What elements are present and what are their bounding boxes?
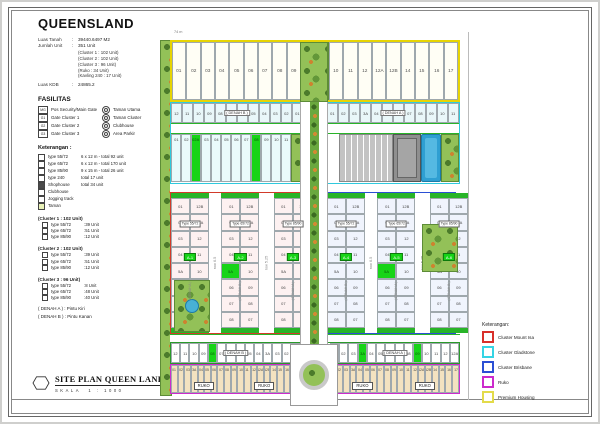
legend-type-row: Taman [38,203,156,210]
lot-cell: 07 [240,312,259,328]
denah-vertical-label: ( DENAH B ) [447,281,451,300]
lot-cell: 01 [430,198,449,214]
lot-cell: 5A [377,263,396,279]
lot-cell: 3A [358,343,367,363]
unit-breakdown-line: (Kavling 240 : 17 Unit) [38,73,156,79]
info-value: 24865.2 [78,82,95,88]
legend-row: Cluster Brisbane [482,361,578,373]
type-count: 40 Unit [85,295,99,301]
lot-cell: 10 [346,263,365,279]
legend-label: Premium Housing [498,395,535,400]
legend-label: Cluster Brisbane [498,365,532,370]
lot-cell: 08 [240,296,259,312]
fasilitas-label: Pos Security/Main Gate [51,106,97,114]
legend-row: Cluster Gladstone [482,346,578,358]
denah-a-chip: ( DENAH A ) [380,110,405,116]
lot-cell: 10 [271,134,281,182]
type-label: Taman [48,203,81,210]
lot-cell: 12 [190,231,209,247]
main-gate-roundabout [290,344,338,406]
lot-cell: 15 [439,365,446,393]
type-label: type 85/90 [51,295,84,301]
cluster-title: (Cluster 2 : 102 Unit) [38,245,156,252]
denah-vertical-label: ( DENAH B ) [344,281,348,300]
lot-cell: 08 [396,296,415,312]
lot-cell: 09 [204,103,215,123]
housing-column-block: 010203045A06070812B12A121110090807A-5Typ… [377,193,415,333]
lot-cell: 10 [397,365,404,393]
legend-type-row: type 65/726 x 12 m - total 170 unit [38,161,156,168]
lot-cell: 02 [338,103,349,123]
ruko-strip-left: RUKO RUKO 0102033A04050607080910111212A1… [170,364,298,394]
lot-cell: 03 [221,231,240,247]
legend-row: Ruko [482,376,578,388]
cluster-title: (Cluster 1 : 102 Unit) [38,215,156,222]
type-count: 12 Unit [85,265,99,271]
legend-label: Ruko [498,380,509,385]
lot-cell: 01 [171,134,181,182]
block-gate-label: A-1 [184,253,196,261]
info-sidebar: QUEENSLAND Luas Tanah: 39440.6497 M2 Jum… [38,16,156,320]
type-swatch [38,161,45,168]
lot-cell: 02 [181,134,191,182]
lot-cell: 07 [217,365,224,393]
lot-cell: 12B [240,198,259,214]
lot-cell: 03 [274,231,293,247]
lot-cell: 11 [431,343,440,363]
sheet-title: SITE PLAN QUEEN LAND [55,374,164,386]
lot-cell: 03 [327,231,346,247]
title-block: SITE PLAN QUEEN LAND SKALA 1 : 1000 [32,374,172,393]
lot-cell: 04 [254,343,263,363]
lot-cell: 02 [186,42,200,100]
lot-cell: 07 [404,103,415,123]
house-type-chip: Type 55/72 [336,220,357,227]
cluster1-breakdown: (Cluster 1 : 102 Unit) type 55/72: 39 Un… [38,215,156,241]
lot-cell: 08 [346,296,365,312]
taman-cluster-icon [102,114,110,122]
gate2-icon: G2 [38,122,48,130]
swimming-pool [421,134,441,182]
block-gate-label: A-4 [340,253,352,261]
lot-cell: 04 [259,103,270,123]
type-desc: 9 x 15 m - total 26 unit [81,168,124,175]
keterangan-heading: Keterangan : [38,145,156,151]
housing-column-block: 010203045A06070812B12A121110090807A-4Typ… [327,193,365,333]
denah-a-note: ( DENAH A ) : Pintu Kiri [38,305,156,312]
lot-cell: 12 [171,103,182,123]
lot-cell: 08 [415,103,426,123]
lot-cell: 11 [404,365,411,393]
road-vertical: row 6.5 [209,193,221,333]
legend-type-row: type 240total 17 unit [38,175,156,182]
lot-cell: 10 [422,343,431,363]
main-gate-icon: MG [38,106,48,114]
fasilitas-label: Gate Cluster 3 [51,130,79,138]
denah-vertical-label: ( DENAH B ) [238,281,242,300]
cluster-title: (Cluster 3 : 96 Unit) [38,276,156,283]
cluster3-breakdown: (Cluster 3 : 96 Unit) type 55/72: 8 Unit… [38,276,156,302]
premium-lots-left: 010203040506070809 [172,42,301,100]
fasilitas-label: Clubhouse [113,122,134,130]
lot-cell: 03 [171,231,190,247]
denah-b-note: ( DENAH B ) : Pintu Kanan [38,313,156,320]
lot-cell: 04 [367,343,376,363]
type-label: Clubhouse [48,189,81,196]
mount-isa-swatch [482,331,494,343]
lot-cell: 09 [391,365,398,393]
lot-cell: 06 [231,134,241,182]
fasilitas-label: Taman Utama [113,106,140,114]
ruko-label: RUKO [254,382,274,390]
legend-type-row: type 85/909 x 15 m - total 26 unit [38,168,156,175]
type-label: type 55/72 [48,154,81,161]
fasilitas-row: G2Gate Cluster 2 Clubhouse [38,122,156,130]
denah-a-lots: ( DENAH A )0102033A0405060708091011 [327,103,459,123]
lot-cell: 02 [339,343,348,363]
lot-cell: 03 [184,365,191,393]
lot-cell: 01 [221,198,240,214]
lot-cell: 07 [449,312,468,328]
type-swatch [38,154,45,161]
lot-cell: 08 [272,42,286,100]
type-label: Jogging track [48,196,81,203]
info-value: 351 Unit [78,43,95,49]
central-garden-top [300,42,328,102]
lot-cell: 10 [240,263,259,279]
ruko-label: RUKO [415,382,435,390]
cluster-legend: Keterangan: Cluster Mount Isa Cluster Gl… [482,322,578,406]
house-type-chip: Type 85/90 [283,220,304,227]
lot-cell: 03 [201,134,211,182]
scale-note: SKALA 1 : 1000 [55,388,164,393]
legend-heading: Keterangan: [482,322,578,328]
lot-cell: 01 [327,198,346,214]
lot-cell: 07 [396,312,415,328]
type-label: type 240 [48,175,81,182]
lot-cell: 08 [449,296,468,312]
lot-cell: 08 [224,365,231,393]
fasilitas-label: Area Parkir [113,130,135,138]
lot-cell: 09 [261,134,271,182]
lot-cell: 5A [221,263,240,279]
type-swatch [38,203,45,210]
lot-cell: 3A [263,343,272,363]
lot-cell: 05 [221,134,231,182]
denah-vertical-label: ( DENAH A ) [291,282,295,301]
denah-b-chip: ( DENAH B ) [223,350,249,356]
ruko-strip-right: RUKO RUKO 0102033A04050607080910111212A1… [328,364,460,394]
gladstone-lots: 010202A030405060708091011 [171,134,291,182]
lot-cell: 12 [396,231,415,247]
lot-cell: 12B [386,42,400,100]
cluster-park-pond [174,280,210,332]
lot-cell: 12B [346,198,365,214]
type-swatch [38,196,45,203]
fasilitas-label: Gate Cluster 2 [51,122,79,130]
ruko-label: RUKO [352,382,372,390]
lot-cell: 01 [327,103,338,123]
lot-cell: 5A [274,263,293,279]
site-plan-drawing: 74 m 010203040506070809 10111212A12B1415… [160,12,474,410]
house-type-chip: Type 65/72 [386,220,407,227]
lot-cell: 06 [244,42,258,100]
lot-cell: 17 [452,365,459,393]
brisbane-swatch [482,361,494,373]
lot-cell: 11 [244,365,251,393]
dimension-line [468,32,469,400]
type-swatch [38,168,45,175]
lot-cell: 01 [171,198,190,214]
project-title: QUEENSLAND [38,16,156,31]
road-vertical: row 5.25 [259,193,274,333]
fasilitas-row: G1Gate Cluster 1 Taman Cluster [38,114,156,122]
fasilitas-heading: FASILITAS [38,96,156,103]
gate1-icon: G1 [38,114,48,122]
lot-cell: 02 [281,103,292,123]
lot-cell: 10 [237,365,244,393]
gate3-icon: G3 [38,130,48,138]
lot-cell: 12A [450,343,459,363]
boulevard-median [310,102,319,346]
lot-cell: 14 [401,42,415,100]
denah-b-lots: ( DENAH B )121110090807060504030201 [171,103,303,123]
lot-cell: 11 [182,103,193,123]
type-desc: 6 x 12 m - total 92 unit [81,154,124,161]
lot-cell: 02 [178,365,185,393]
ruko-swatch [482,376,494,388]
lot-cell: 07 [258,42,272,100]
block-gate-label: A-5 [390,253,402,261]
legend-label: Cluster Mount Isa [498,335,534,340]
lot-cell: 09 [449,279,468,295]
legend-label: Cluster Gladstone [498,350,535,355]
type-desc: total 17 unit [81,175,103,182]
legend-type-row: type 55/726 x 12 m - total 92 unit [38,154,156,161]
bottom-lots-left: ( DENAH B )121110090807065A05043A030201 [171,343,300,363]
lot-cell: 10 [189,343,198,363]
lot-cell: 03 [272,343,281,363]
lot-cell: 5A [327,263,346,279]
cluster-park-east [422,224,458,272]
lot-cell: 11 [180,343,189,363]
lot-cell: 11 [281,134,291,182]
legend-type-row: Clubhouse [38,189,156,196]
paper-sheet: QUEENSLAND Luas Tanah: 39440.6497 M2 Jum… [2,2,598,422]
area-parkir-icon [102,130,110,138]
parking-area [339,134,393,182]
lot-cell: 10 [437,103,448,123]
lot-cell: 09 [199,343,208,363]
legend-row: Premium Housing [482,391,578,403]
block-gate-label: A-2 [234,253,246,261]
lot-cell: 01 [171,365,178,393]
lot-cell: 01 [377,198,396,214]
clubhouse-complex [339,134,459,182]
pond [185,299,199,313]
type-swatch [38,175,45,182]
housing-column-block: 010203045A06070812B12A121110090807A-2Typ… [221,193,259,333]
legend-type-row: Jogging track [38,196,156,203]
type-label: type 65/72 [48,161,81,168]
fasilitas-row: G3Gate Cluster 3 Area Parkir [38,130,156,138]
lot-cell: 09 [346,279,365,295]
legend-type-row: Shophousetotal 34 unit [38,182,156,189]
fasilitas-label: Taman Cluster [113,114,141,122]
type-label: type 85/90 [48,168,81,175]
house-type-chip: Type 55/72 [180,220,201,227]
type-label: type 85/90 [51,234,84,240]
lot-cell: 5A [171,263,190,279]
lot-cell: 09 [240,279,259,295]
type-label: type 85/90 [51,265,84,271]
lot-cell: 10 [193,103,204,123]
lot-cell: 16 [445,365,452,393]
lot-cell: 12B [190,198,209,214]
clubhouse-icon [102,122,110,130]
lot-cell: 05 [229,42,243,100]
lot-cell: 15 [277,365,284,393]
type-desc: total 34 unit [81,182,103,189]
lot-cell: 17 [444,42,458,100]
denah-b-chip: ( DENAH B ) [224,110,250,116]
lot-cell: 08 [430,312,449,328]
lot-cell: 09 [413,343,422,363]
lot-cell: 3A [360,103,371,123]
type-count: 12 Unit [85,234,99,240]
denah-vertical-label: ( DENAH A ) [394,282,398,301]
lot-cell: 03 [201,42,215,100]
lot-cell: 08 [251,134,261,182]
lot-cell: 03 [377,231,396,247]
lot-cell: 12B [396,198,415,214]
denah-a-chip: ( DENAH A ) [382,350,407,356]
block-gate-label: A-3 [287,253,299,261]
lot-cell: 07 [241,134,251,182]
fasilitas-label: Gate Cluster 1 [51,114,79,122]
house-type-chip: Type 85/90 [439,220,460,227]
info-label: Jumlah Unit [38,43,72,49]
lot-cell: 12 [346,231,365,247]
cluster2-breakdown: (Cluster 2 : 102 Unit) type 55/72: 39 Un… [38,245,156,271]
ruko-label: RUKO [194,382,214,390]
lot-cell: 07 [377,365,384,393]
lot-cell: 12 [171,343,180,363]
dimension-text: 74 m [174,30,182,34]
lot-cell: 01 [274,198,293,214]
lot-cell: 10 [329,42,343,100]
lot-cell: 04 [215,42,229,100]
lot-cell: 09 [231,365,238,393]
site-plan-sheet: { "sidebar": { "title": "QUEENSLAND", "i… [0,0,600,424]
info-row: Luas KDB: 24865.2 [38,82,156,88]
denah-vertical-label: ( DENAH A ) [188,282,192,301]
lot-cell: 12B [449,198,468,214]
lot-cell: 08 [208,343,217,363]
house-type-chip: Type 65/72 [230,220,251,227]
lot-cell: 08 [384,365,391,393]
lot-cell: 12 [441,343,450,363]
lot-cell: 09 [396,279,415,295]
lot-cell: 03 [348,343,357,363]
type-desc: 6 x 12 m - total 170 unit [81,161,126,168]
block-gate-label: A-6 [443,253,455,261]
lot-cell: 03 [270,103,281,123]
lot-cell: 12 [358,42,372,100]
type-swatch [38,189,45,196]
type-swatch [38,182,45,189]
lot-cell: 10 [396,263,415,279]
lot-cell: 08 [221,312,240,328]
premium-swatch [482,391,494,403]
clubhouse-building [393,134,421,182]
gladstone-swatch [482,346,494,358]
lot-cell: 03 [343,365,350,393]
lot-cell: 12 [240,231,259,247]
company-logo-icon [32,375,50,391]
lot-cell: 12A [372,42,386,100]
lot-cell: 11 [343,42,357,100]
info-label: Luas KDB [38,82,72,88]
lot-cell: 02A [191,134,201,182]
roundabout-island [299,360,329,390]
lot-cell: 03 [349,103,360,123]
lot-cell: 09 [287,42,301,100]
lot-cell: 07 [346,312,365,328]
lot-cell: 08 [377,312,396,328]
premium-lots-right: 10111212A12B14151617 [329,42,458,100]
lot-cell: 08 [327,312,346,328]
bottom-lots-right: ( DENAH A )0102033A04050607080910111212A [330,343,459,363]
type-label: Shophouse [48,182,81,189]
lot-cell: 01 [172,42,186,100]
lot-cell: 08 [274,312,293,328]
lot-cell: 16 [429,42,443,100]
lot-cell: 04 [211,134,221,182]
road-vertical: row 6.5 [365,193,377,333]
lot-cell: 11 [448,103,459,123]
lot-cell: 09 [426,103,437,123]
clubhouse-garden [441,134,459,182]
legend-row: Cluster Mount Isa [482,331,578,343]
lot-cell: 15 [415,42,429,100]
taman-utama-icon [102,106,110,114]
fasilitas-row: MGPos Security/Main Gate Taman Utama [38,106,156,114]
lot-cell: 10 [190,263,209,279]
central-boulevard [300,102,328,346]
